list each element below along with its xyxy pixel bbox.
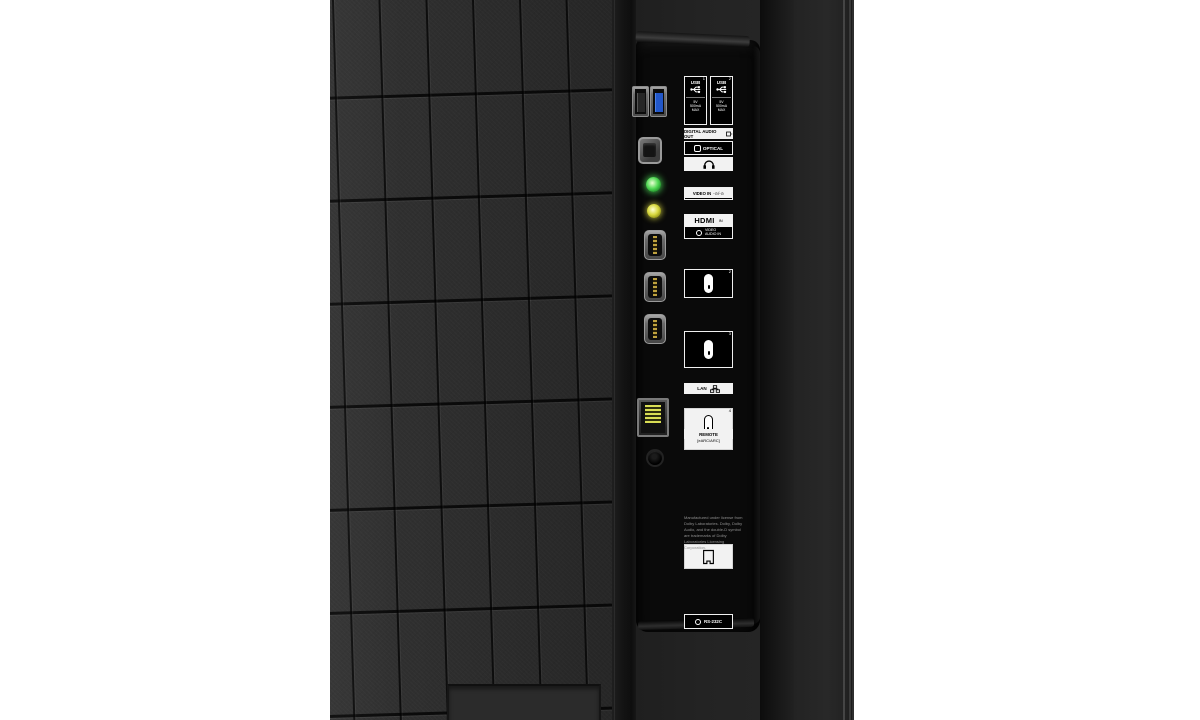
- timer-led-yellow: [647, 204, 661, 218]
- video-audio-in-label-box: VIDEO AUDIO IN: [684, 226, 733, 239]
- usb-trident-icon: [690, 85, 702, 94]
- bay-right-shadow: [760, 0, 794, 720]
- optical-label-box: OPTICAL: [684, 141, 733, 155]
- optical-out-icon: [726, 131, 733, 137]
- hdmi-pins: [653, 236, 657, 254]
- usb-2-cavity: [635, 89, 646, 114]
- headphone-label: [684, 157, 733, 171]
- optical-port-icon: [694, 145, 701, 152]
- hdmi-pins: [653, 278, 657, 296]
- tv-side-bezel: [794, 0, 854, 720]
- bezel-edge-line: [852, 0, 854, 720]
- bottom-recess-cutout: [447, 684, 601, 720]
- optical-audio-out-port: [638, 137, 662, 164]
- usb-trident-icon: [716, 85, 728, 94]
- usb-3-port: [650, 86, 667, 117]
- hdmi-pins: [653, 320, 657, 338]
- headphone-icon: [703, 160, 715, 169]
- usb-spec-line2: 500mA MAX: [712, 104, 731, 112]
- hdmi-cavity: [648, 276, 662, 298]
- hdmi-port-number: 4: [729, 409, 731, 413]
- usb-spec-text: 5V 500mA MAX: [712, 97, 731, 112]
- video-in-text: VIDEO IN: [693, 191, 711, 196]
- jack-ring-icon: [696, 230, 702, 236]
- hdmi-port-icon: [704, 340, 713, 359]
- usb-2-port: [632, 86, 649, 117]
- usb-3-cavity: [653, 89, 664, 114]
- rs232c-label-box: RS-232C: [684, 614, 733, 629]
- bezel-highlight-line: [843, 0, 845, 720]
- hdmi-logo-text: HDMI: [694, 216, 714, 225]
- hdmi-connector-2: [644, 272, 666, 302]
- grid-shading: [330, 0, 622, 720]
- ethernet-cavity: [641, 402, 665, 433]
- video-in-label: VIDEO IN -⊙/-⊙: [684, 188, 733, 198]
- hdmi-label-box-2: 3: [684, 331, 733, 368]
- hdmi-label-box-1: 2: [684, 269, 733, 298]
- tv-back-panel: 1 USB 5V 500mA MAX 2 USB 5V 500mA MAX: [330, 0, 854, 720]
- composite-video-icons: -⊙/-⊙: [713, 191, 724, 196]
- hdmi-in-label: HDMI IN: [684, 214, 733, 227]
- usb-port-group: [632, 86, 667, 117]
- label-panel: 1 USB 5V 500mA MAX 2 USB 5V 500mA MAX: [684, 40, 744, 620]
- optical-text: OPTICAL: [703, 146, 723, 151]
- usb-label-group: 1 USB 5V 500mA MAX 2 USB 5V 500mA MAX: [684, 76, 733, 125]
- hdmi-connector-1: [644, 230, 666, 260]
- remote-label: REMOTE: [684, 429, 733, 439]
- usb-port-number: 1: [703, 77, 705, 81]
- network-icon: [710, 385, 720, 393]
- remote-text: REMOTE: [699, 432, 718, 437]
- digital-audio-out-label: DIGITAL AUDIO OUT: [684, 128, 733, 139]
- optical-cavity: [643, 143, 656, 157]
- ethernet-lan-port: [637, 398, 669, 437]
- usb-spec-line2: 500mA MAX: [686, 104, 705, 112]
- usb-2-tongue: [637, 93, 645, 112]
- ethernet-pins: [645, 405, 661, 423]
- hdmi-cavity: [648, 234, 662, 256]
- power-led-green: [646, 177, 661, 192]
- usb-spec-text: 5V 500mA MAX: [686, 97, 705, 112]
- usb-port-number: 2: [729, 77, 731, 81]
- video-audio-in-line2: AUDIO IN: [705, 233, 721, 237]
- grid-texture-panel: [330, 0, 622, 720]
- hdmi-connector-3: [644, 314, 666, 344]
- rs232c-text: RS-232C: [704, 619, 722, 624]
- usb-label-2: 2 USB 5V 500mA MAX: [710, 76, 733, 125]
- product-photo-scene: 1 USB 5V 500mA MAX 2 USB 5V 500mA MAX: [0, 0, 1200, 720]
- usb-3-blue-tongue: [655, 93, 663, 112]
- port-section: [636, 0, 854, 720]
- bezel-highlight-line: [849, 0, 851, 720]
- hdmi-port-icon: [704, 274, 713, 293]
- hdmi-cavity: [648, 318, 662, 340]
- video-audio-in-text: VIDEO AUDIO IN: [705, 229, 721, 237]
- remote-minijack-port: [648, 451, 662, 465]
- usb-label-1: 1 USB 5V 500mA MAX: [684, 76, 707, 125]
- hdmi-port-number: 3: [729, 332, 731, 336]
- digital-audio-out-text: DIGITAL AUDIO OUT: [684, 129, 724, 139]
- lan-text: LAN: [697, 386, 706, 391]
- lan-label: LAN: [684, 383, 733, 394]
- legal-fine-print: Manufactured under license from Dolby La…: [684, 515, 744, 551]
- jack-ring-icon: [695, 619, 701, 625]
- hdmi-in-suffix: IN: [719, 218, 723, 223]
- hdmi-port-number: 2: [729, 270, 731, 274]
